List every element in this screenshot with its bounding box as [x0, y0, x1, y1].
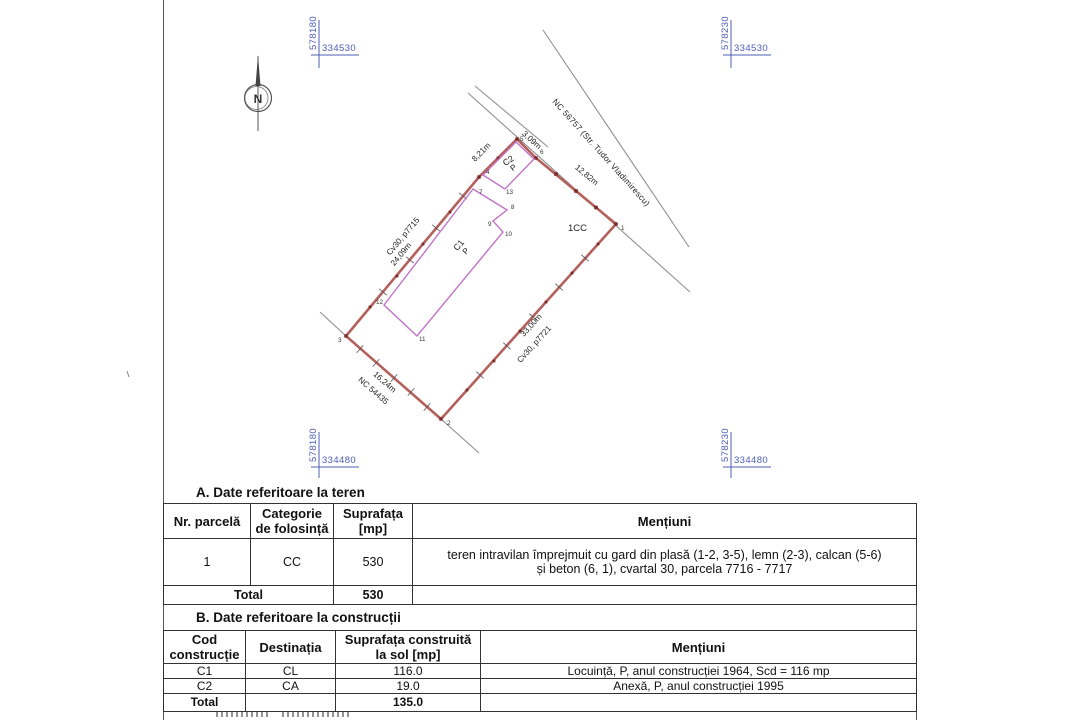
table-land: Nr. parcelă Categorie de folosință Supra… — [163, 503, 917, 605]
header-text: la sol [mp] — [375, 647, 440, 662]
neighbor-northwest: Cv30, p7715 — [385, 215, 422, 257]
north-arrow-icon: N — [245, 55, 272, 131]
north-label: N — [254, 92, 263, 106]
coord-cross-top-left: 578180 334530 — [308, 16, 359, 68]
total-value-cell: 135.0 — [336, 694, 481, 711]
table-row: 1 CC 530 teren intravilan împrejmuit cu … — [164, 539, 916, 586]
cell-text: Locuință, P, anul construcției 1964, Scd… — [567, 665, 829, 678]
header-suprafata-construita: Suprafața construită la sol [mp] — [336, 631, 481, 663]
coord-easting: 578180 — [308, 16, 319, 50]
cell-text: 135.0 — [393, 696, 423, 709]
cell-text: teren intravilan împrejmuit cu gard din … — [447, 548, 881, 562]
cell-text: CL — [283, 665, 298, 678]
header-text: Suprafața construită — [345, 632, 471, 647]
cell-text: 530 — [363, 555, 384, 569]
cell-text: Total — [234, 588, 263, 602]
point-label: 9 — [488, 221, 492, 228]
header-suprafata: Suprafața [mp] — [334, 504, 413, 538]
table-constructions: Cod construcție Destinația Suprafața con… — [163, 630, 917, 712]
building-c2-regime: P — [509, 162, 519, 173]
empty-cell — [246, 694, 336, 711]
cell-nr: 1 — [164, 539, 251, 585]
coord-easting: 578230 — [720, 428, 731, 462]
total-label-cell: Total — [164, 694, 246, 711]
point-label: 7 — [479, 189, 483, 196]
table-constructions-header-row: Cod construcție Destinația Suprafața con… — [164, 631, 916, 664]
header-destinatia: Destinația — [246, 631, 336, 663]
building-c1-outline — [384, 189, 507, 336]
dim-southeast: 33,00m — [519, 312, 544, 338]
cell-text: C1 — [197, 665, 212, 678]
header-text: Mențiuni — [638, 514, 691, 529]
dim-southwest: 16,24m — [371, 370, 398, 395]
cell-text: 530 — [363, 588, 384, 602]
point-label: 10 — [505, 231, 513, 238]
table-land-header-row: Nr. parcelă Categorie de folosință Supra… — [164, 504, 916, 539]
cell-text: Total — [191, 696, 219, 709]
point-label: 8 — [511, 204, 515, 211]
dim-northwest-upper: 8,21m — [470, 141, 493, 164]
point-label: 11 — [419, 336, 426, 343]
cell-cod: C1 — [164, 664, 246, 678]
dim-top: 3,09m — [520, 129, 543, 151]
header-text: Cod — [192, 632, 217, 647]
header-categorie: Categorie de folosință — [251, 504, 334, 538]
cell-text: și beton (6, 1), cvartal 30, parcela 771… — [537, 562, 793, 576]
point-label: 4 — [486, 169, 490, 176]
point-label: 2 — [447, 420, 451, 427]
header-nr-parcela: Nr. parcelă — [164, 504, 251, 538]
zone-label: 1CC — [568, 223, 587, 234]
building-c2-label: C2 — [501, 153, 516, 168]
coord-easting: 578230 — [720, 16, 731, 50]
coord-northing: 334480 — [322, 455, 356, 466]
point-numbers: 1 2 3 4 5 6 7 8 9 10 11 12 13 — [338, 136, 625, 427]
cell-cod: C2 — [164, 679, 246, 693]
header-text: [mp] — [359, 521, 387, 536]
point-label: 12 — [376, 299, 384, 306]
building-c2-outline — [483, 142, 534, 189]
cell-categorie: CC — [251, 539, 334, 585]
boundary-markers — [344, 137, 617, 420]
cell-text: Anexă, P, anul construcției 1995 — [613, 680, 784, 693]
cell-text: CC — [283, 555, 301, 569]
coord-cross-top-right: 578230 334530 — [720, 16, 771, 68]
section-b-title: B. Date referitoare la construcții — [196, 610, 401, 625]
building-c1-regime: P — [461, 246, 472, 256]
cell-text: CA — [282, 680, 299, 693]
neighbor-southwest: NC 54435 — [356, 375, 390, 406]
empty-cell — [413, 586, 916, 604]
dim-northwest: 24,09m — [389, 241, 414, 268]
cell-text: C2 — [197, 680, 212, 693]
cadastral-plan-page: N 578180 334530 578230 334530 578180 334… — [0, 0, 1080, 720]
total-value-cell: 530 — [334, 586, 413, 604]
empty-cell — [481, 694, 916, 711]
cell-suprafata: 19.0 — [336, 679, 481, 693]
cell-suprafata: 116.0 — [336, 664, 481, 678]
dim-northeast: 12,82m — [573, 163, 600, 188]
table-row: C1 CL 116.0 Locuință, P, anul construcți… — [164, 664, 916, 679]
cell-suprafata: 530 — [334, 539, 413, 585]
header-text: Nr. parcelă — [174, 514, 241, 529]
coord-northing: 334530 — [734, 43, 768, 54]
parcel-boundary — [346, 139, 616, 419]
point-label: 13 — [506, 189, 514, 196]
header-text: de folosință — [256, 521, 329, 536]
point-label: 5 — [520, 136, 524, 143]
road-lines — [320, 30, 690, 453]
header-text: construcție — [169, 647, 239, 662]
table-total-row: Total 135.0 — [164, 694, 916, 711]
road-label: NC 56757 (Str. Tudor Vladimirescu) — [551, 97, 653, 209]
cell-destinatia: CA — [246, 679, 336, 693]
header-mentiuni: Mențiuni — [481, 631, 916, 663]
neighbor-southeast: Cv30, p7721 — [515, 324, 553, 365]
section-a-title: A. Date referitoare la teren — [196, 485, 365, 500]
plan-labels: 1CC 3,09m 12,82m 8,21m Cv30, p7715 24,09… — [356, 129, 600, 406]
coord-cross-bottom-left: 578180 334480 — [308, 428, 359, 478]
header-cod-constructie: Cod construcție — [164, 631, 246, 663]
coord-cross-bottom-right: 578230 334480 — [720, 428, 771, 478]
point-label: 6 — [540, 149, 544, 156]
cell-mentiuni: Locuință, P, anul construcției 1964, Scd… — [481, 664, 916, 678]
cell-text: 116.0 — [393, 665, 422, 678]
cell-mentiuni: teren intravilan împrejmuit cu gard din … — [413, 539, 916, 585]
coord-easting: 578180 — [308, 428, 319, 462]
building-c1-label: C1 — [451, 237, 466, 252]
header-text: Suprafața — [343, 506, 403, 521]
header-text: Mențiuni — [672, 640, 725, 655]
point-label: 3 — [338, 337, 342, 344]
table-row: C2 CA 19.0 Anexă, P, anul construcției 1… — [164, 679, 916, 694]
header-text: Destinația — [259, 640, 321, 655]
cell-mentiuni: Anexă, P, anul construcției 1995 — [481, 679, 916, 693]
cut-off-text-fragment — [216, 712, 268, 717]
table-total-row: Total 530 — [164, 586, 916, 604]
cell-text: 1 — [204, 555, 211, 569]
site-plan-drawing: N 578180 334530 578230 334530 578180 334… — [0, 0, 1080, 720]
point-label: 1 — [621, 225, 625, 232]
coord-northing: 334530 — [322, 43, 356, 54]
coord-northing: 334480 — [734, 455, 768, 466]
cell-text: 19.0 — [396, 680, 419, 693]
cell-destinatia: CL — [246, 664, 336, 678]
cut-off-text-fragment — [282, 712, 352, 717]
total-label-cell: Total — [164, 586, 334, 604]
header-text: Categorie — [262, 506, 322, 521]
header-mentiuni: Mențiuni — [413, 504, 916, 538]
